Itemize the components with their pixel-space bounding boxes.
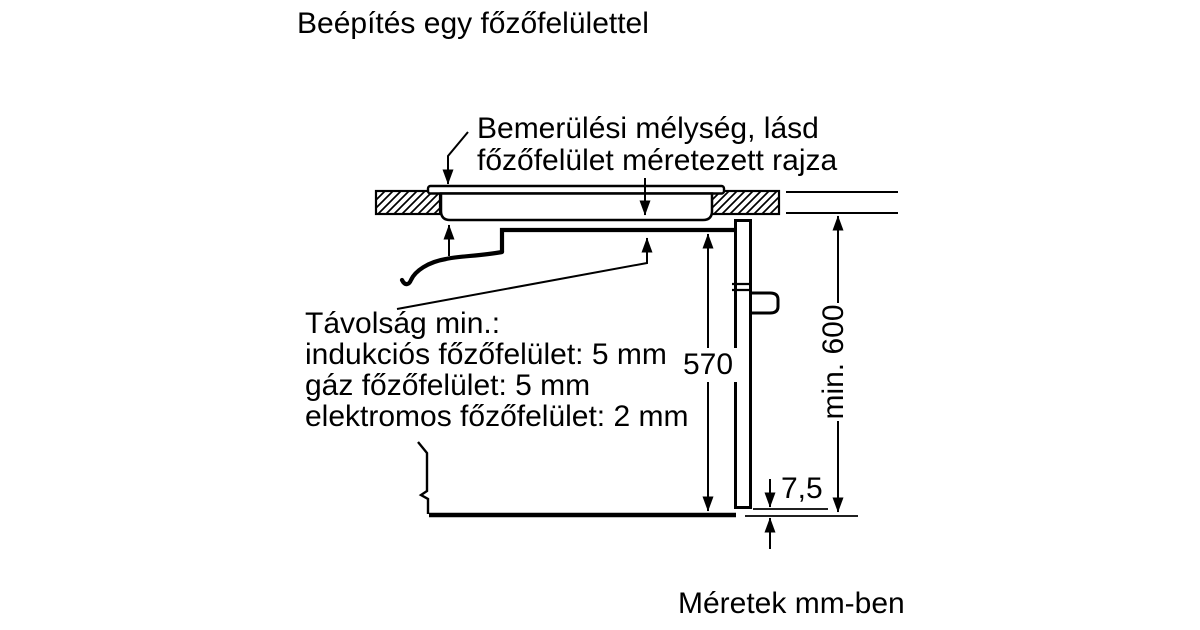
min-distance-note: Távolság min.: indukciós főzőfelület: 5 …	[305, 308, 688, 432]
units-note: Méretek mm-ben	[678, 587, 905, 621]
worktop-right-extension-lines	[786, 192, 898, 213]
diagram-title: Beépítés egy főzőfelülettel	[297, 7, 649, 41]
note-induction: indukciós főzőfelület: 5 mm	[305, 339, 688, 370]
oven-top-panel	[502, 230, 736, 252]
dimension-label-oven-height: 570	[668, 348, 748, 382]
dimension-label-niche-height: min. 600	[817, 303, 851, 421]
distance-leader-arrow	[397, 238, 647, 309]
oven-left-break-line	[418, 442, 428, 514]
callout-line-1: Bemerülési mélység, lásd	[477, 113, 837, 145]
note-electric: elektromos főzőfelület: 2 mm	[305, 401, 688, 432]
oven-installation-diagram: Beépítés egy főzőfelülettel Bemerülési m…	[0, 0, 1200, 630]
control-knob	[751, 293, 779, 313]
immersion-depth-callout: Bemerülési mélység, lásd főzőfelület mér…	[477, 113, 837, 177]
oven-left-break-curve	[402, 252, 502, 284]
note-gas: gáz főzőfelület: 5 mm	[305, 370, 688, 401]
dimension-label-door-gap: 7,5	[781, 472, 823, 506]
hob	[428, 186, 724, 220]
note-heading: Távolság min.:	[305, 308, 688, 339]
immersion-depth-leader-arrow	[448, 132, 468, 184]
hob-tub-body	[441, 194, 712, 221]
callout-line-2: főzőfelület méretezett rajza	[477, 145, 837, 177]
